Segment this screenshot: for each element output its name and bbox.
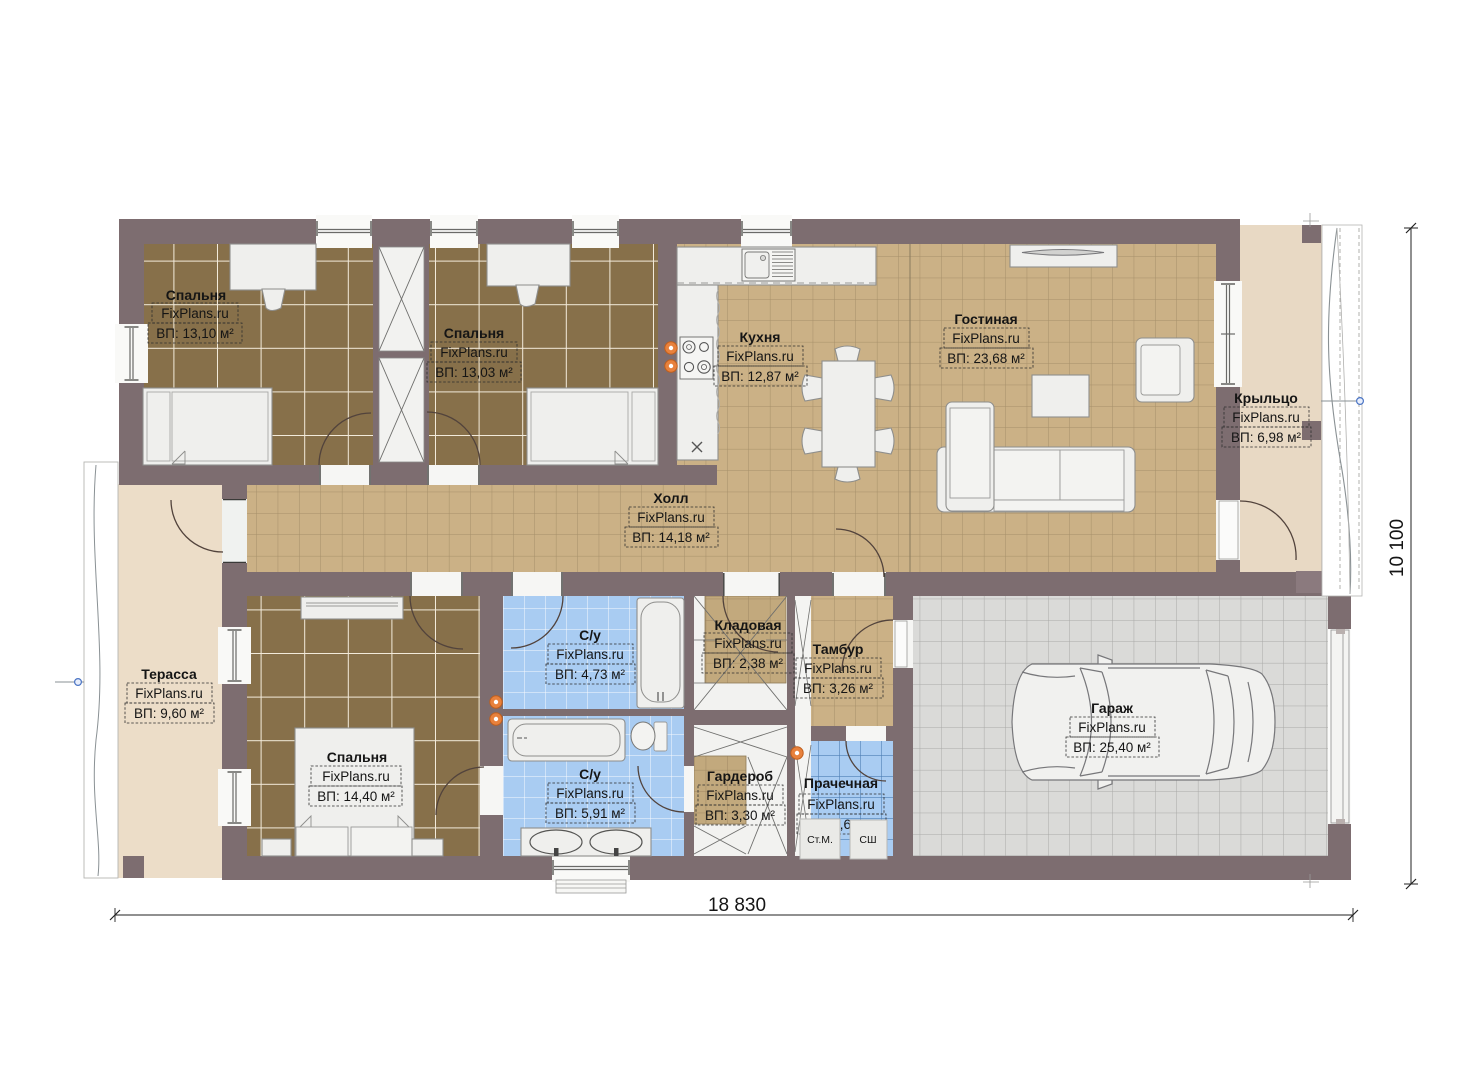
svg-text:Спальня: Спальня [166, 287, 226, 303]
svg-text:ВП: 23,68 м²: ВП: 23,68 м² [947, 351, 1025, 366]
svg-text:10 100: 10 100 [1387, 519, 1408, 577]
svg-text:Терасса: Терасса [141, 666, 197, 682]
svg-text:FixPlans.ru: FixPlans.ru [726, 349, 794, 364]
svg-text:ВП: 5,91 м²: ВП: 5,91 м² [555, 806, 626, 821]
svg-text:FixPlans.ru: FixPlans.ru [556, 786, 624, 801]
svg-text:FixPlans.ru: FixPlans.ru [952, 331, 1020, 346]
svg-text:18 830: 18 830 [708, 895, 766, 916]
svg-text:ВП: 13,10 м²: ВП: 13,10 м² [156, 326, 234, 341]
svg-text:Тамбур: Тамбур [813, 641, 864, 657]
svg-text:ВП: 14,18 м²: ВП: 14,18 м² [632, 530, 710, 545]
svg-text:ВП: 14,40 м²: ВП: 14,40 м² [317, 789, 395, 804]
svg-text:Кладовая: Кладовая [714, 617, 781, 633]
svg-text:СШ: СШ [859, 834, 876, 846]
svg-text:FixPlans.ru: FixPlans.ru [1078, 720, 1146, 735]
svg-text:FixPlans.ru: FixPlans.ru [1232, 410, 1300, 425]
svg-text:FixPlans.ru: FixPlans.ru [807, 797, 875, 812]
svg-text:FixPlans.ru: FixPlans.ru [135, 686, 203, 701]
svg-text:FixPlans.ru: FixPlans.ru [161, 306, 229, 321]
svg-text:FixPlans.ru: FixPlans.ru [804, 661, 872, 676]
svg-text:Спальня: Спальня [444, 325, 504, 341]
svg-text:С/у: С/у [579, 627, 601, 643]
svg-text:ВП: 6,98 м²: ВП: 6,98 м² [1231, 430, 1302, 445]
svg-text:Крыльцо: Крыльцо [1234, 390, 1298, 406]
svg-text:FixPlans.ru: FixPlans.ru [556, 647, 624, 662]
svg-text:ВП: 4,73 м²: ВП: 4,73 м² [555, 667, 626, 682]
svg-text:Холл: Холл [653, 490, 688, 506]
svg-text:Кухня: Кухня [740, 329, 781, 345]
svg-text:Спальня: Спальня [327, 749, 387, 765]
svg-text:ВП: 25,40 м²: ВП: 25,40 м² [1073, 740, 1151, 755]
svg-text:ВП: 13,03 м²: ВП: 13,03 м² [435, 365, 513, 380]
svg-text:ВП: 9,60 м²: ВП: 9,60 м² [134, 706, 205, 721]
svg-text:FixPlans.ru: FixPlans.ru [706, 788, 774, 803]
svg-text:Гардероб: Гардероб [707, 768, 774, 784]
svg-text:Ст.М.: Ст.М. [807, 834, 833, 846]
svg-text:Гостиная: Гостиная [954, 311, 1017, 327]
svg-text:С/у: С/у [579, 766, 601, 782]
svg-text:Гараж: Гараж [1091, 700, 1134, 716]
svg-text:FixPlans.ru: FixPlans.ru [637, 510, 705, 525]
svg-text:ВП: 3,26 м²: ВП: 3,26 м² [803, 681, 874, 696]
svg-text:ВП: 2,38 м²: ВП: 2,38 м² [713, 656, 784, 671]
svg-text:ВП: 3,30 м²: ВП: 3,30 м² [705, 808, 776, 823]
svg-text:FixPlans.ru: FixPlans.ru [322, 769, 390, 784]
svg-text:Прачечная: Прачечная [804, 775, 878, 791]
svg-text:ВП: 12,87 м²: ВП: 12,87 м² [721, 369, 799, 384]
svg-text:FixPlans.ru: FixPlans.ru [440, 345, 508, 360]
svg-text:FixPlans.ru: FixPlans.ru [714, 636, 782, 651]
